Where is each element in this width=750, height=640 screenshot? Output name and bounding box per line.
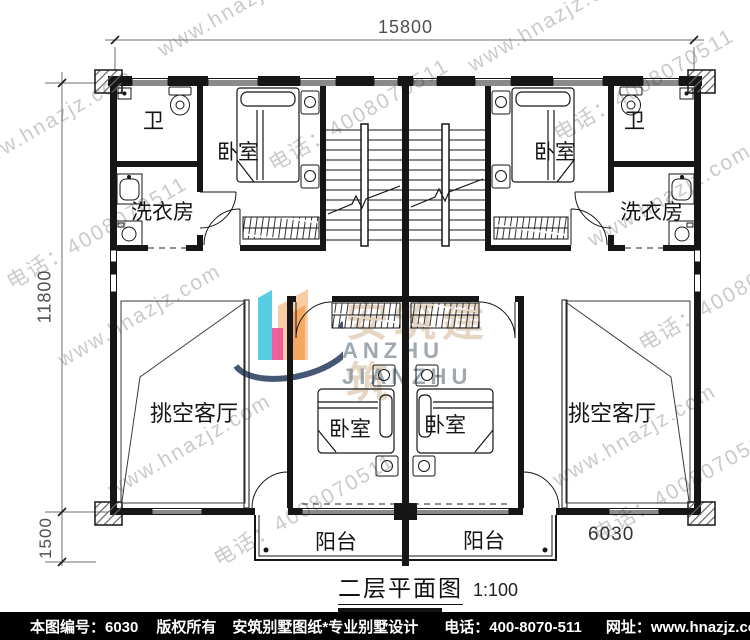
drawing-title: 二层平面图 — [338, 569, 463, 605]
footer-website: 网址：www.hnazjz.com — [606, 616, 750, 637]
room-label-living-right: 挑空客厅 — [568, 396, 656, 428]
footer-copyright: 版权所有 — [156, 616, 216, 637]
room-label-bathroom-right: 卫 — [624, 105, 645, 135]
room-label-bathroom-left: 卫 — [143, 105, 164, 135]
room-label-laundry-left: 洗衣房 — [131, 196, 194, 226]
room-label-balcony-left: 阳台 — [315, 526, 357, 556]
footer-phone: 电话：400-8070-511 — [444, 616, 582, 637]
room-label-bedroom-top-right: 卧室 — [534, 136, 576, 166]
room-label-bedroom-top-left: 卧室 — [217, 136, 259, 166]
room-label-laundry-right: 洗衣房 — [620, 196, 683, 226]
floor-plan-area: www.hnazjz.com 电话：4008070511 www.hnazjz.… — [0, 0, 750, 612]
dimension-left-height: 11800 — [34, 270, 55, 324]
screenshot-root: www.hnazjz.com 电话：4008070511 www.hnazjz.… — [0, 0, 750, 640]
dimension-balcony-depth: 1500 — [36, 517, 56, 559]
room-label-bedroom-center-left: 卧室 — [329, 413, 371, 443]
footer-brand: 安筑别墅图纸*专业别墅设计 — [232, 616, 418, 637]
footer-sheet-number: 本图编号：6030 — [30, 616, 138, 637]
dimension-top-width: 15800 — [378, 17, 433, 38]
bed-top-left — [237, 88, 299, 182]
drawing-scale: 1:100 — [473, 580, 518, 601]
floor-plan-svg — [0, 0, 750, 612]
dimension-balcony-width: 6030 — [588, 524, 634, 546]
room-label-living-left: 挑空客厅 — [150, 396, 238, 428]
bed-top-right — [512, 88, 574, 182]
staircase-left — [326, 124, 402, 246]
staircase-right — [409, 124, 485, 246]
footer-info-bar: 本图编号：6030 版权所有 安筑别墅图纸*专业别墅设计 电话：400-8070… — [0, 612, 750, 640]
room-label-bedroom-center-right: 卧室 — [424, 409, 466, 439]
room-label-balcony-right: 阳台 — [463, 525, 505, 555]
drawing-title-block: 二层平面图 1:100 — [338, 569, 518, 613]
